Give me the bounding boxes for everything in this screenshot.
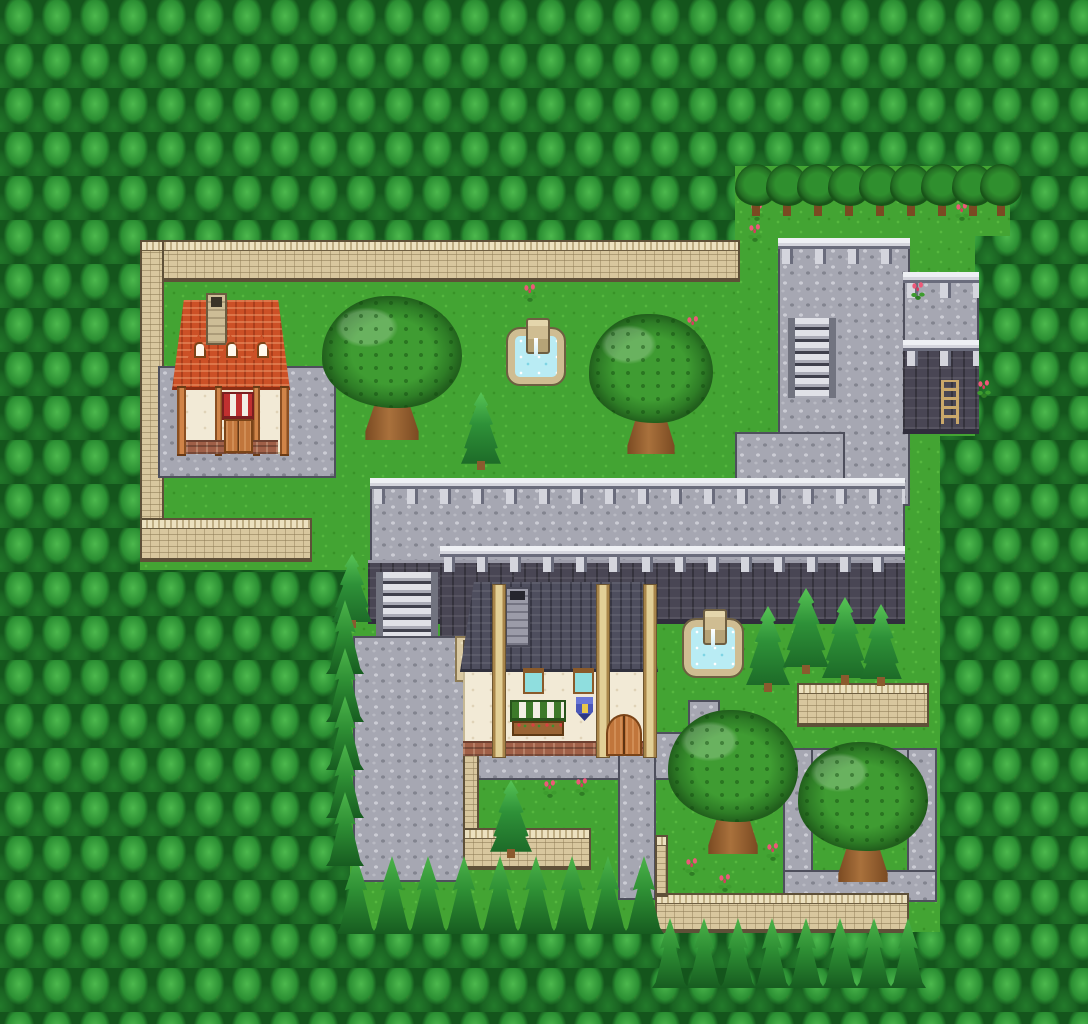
garden-wall — [797, 683, 929, 727]
oak-tree — [322, 296, 462, 440]
cypress-tree — [461, 392, 501, 470]
flower-patch — [975, 380, 993, 398]
shop-door[interactable] — [606, 714, 642, 756]
platform-stairs[interactable] — [788, 318, 836, 398]
shop-window — [523, 668, 544, 694]
shop-beam — [492, 584, 506, 758]
north-wall — [140, 240, 740, 282]
inn-post — [280, 386, 289, 456]
flower-patch — [716, 874, 734, 892]
shop-roof — [460, 582, 658, 672]
fountain — [508, 329, 564, 384]
flower-patch — [683, 858, 701, 876]
cypress-tree — [490, 780, 532, 858]
shop-chimney — [505, 587, 530, 647]
shop-window — [573, 668, 594, 694]
fountain — [684, 620, 742, 676]
walkway-railing — [370, 478, 905, 504]
west-wall-return — [140, 518, 312, 562]
grove-tree — [980, 164, 1022, 216]
shop-flowerbox — [512, 721, 564, 736]
platform-railing — [778, 238, 910, 264]
flower-patch — [764, 843, 782, 861]
flower-patch — [746, 224, 764, 242]
south-plaza — [353, 636, 465, 882]
game-map[interactable] — [0, 0, 1088, 1024]
inn-awning — [222, 392, 254, 420]
oak-tree — [798, 742, 928, 882]
inn-door[interactable] — [224, 419, 253, 453]
oak-tree — [589, 314, 713, 454]
cypress-tree — [860, 604, 902, 686]
south-wall — [655, 893, 909, 933]
cliff-top-railing — [440, 546, 905, 572]
shop-beam — [643, 584, 657, 758]
cypress-tree — [332, 554, 372, 628]
annex-ladder[interactable] — [941, 380, 959, 424]
flower-patch — [573, 778, 591, 796]
south-wall-stub — [655, 835, 668, 897]
inn-chimney — [206, 293, 227, 345]
annex-railing-mid — [903, 340, 979, 366]
flower-patch — [521, 284, 539, 302]
inn-post — [177, 386, 186, 456]
oak-tree — [668, 710, 798, 854]
shop-awning — [510, 700, 566, 722]
flower-patch — [541, 780, 559, 798]
flower-patch — [909, 282, 927, 300]
